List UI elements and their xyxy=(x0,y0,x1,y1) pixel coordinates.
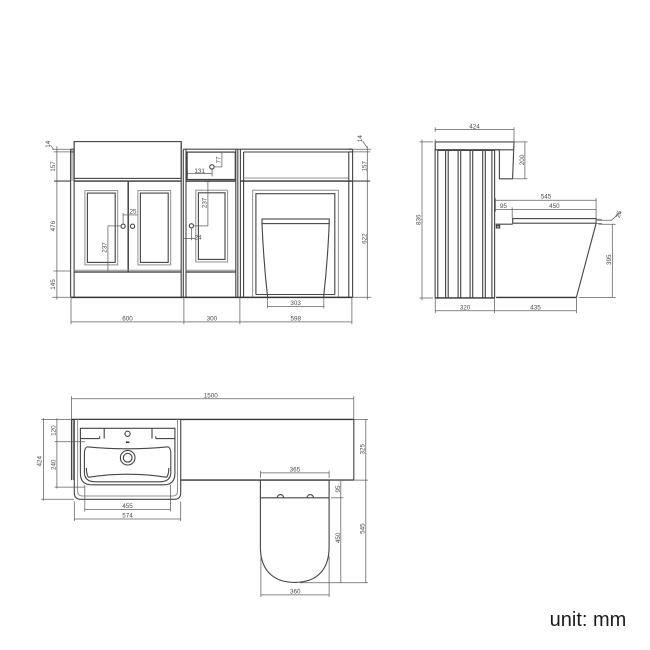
svg-text:240: 240 xyxy=(50,459,57,470)
svg-text:622: 622 xyxy=(361,233,368,244)
svg-text:145: 145 xyxy=(50,279,57,290)
svg-text:574: 574 xyxy=(122,513,133,520)
svg-text:200: 200 xyxy=(519,154,526,165)
svg-text:836: 836 xyxy=(416,214,423,225)
svg-text:157: 157 xyxy=(50,161,57,172)
svg-text:14: 14 xyxy=(357,135,364,143)
svg-text:95: 95 xyxy=(500,203,508,210)
svg-text:450: 450 xyxy=(549,203,560,210)
svg-text:237: 237 xyxy=(202,197,209,208)
svg-text:131: 131 xyxy=(194,168,205,175)
svg-text:424: 424 xyxy=(37,455,44,466)
svg-text:395: 395 xyxy=(606,254,613,265)
svg-text:455: 455 xyxy=(122,503,133,510)
svg-text:77: 77 xyxy=(215,156,222,164)
svg-text:450: 450 xyxy=(335,532,342,543)
svg-text:25: 25 xyxy=(129,209,137,216)
svg-text:120: 120 xyxy=(50,425,57,436)
svg-text:14: 14 xyxy=(45,140,52,148)
svg-text:545: 545 xyxy=(360,523,367,534)
svg-text:95: 95 xyxy=(335,485,342,493)
svg-text:598: 598 xyxy=(291,316,302,323)
svg-text:157: 157 xyxy=(361,160,368,171)
svg-text:325: 325 xyxy=(360,443,367,454)
svg-text:320: 320 xyxy=(460,305,471,312)
svg-text:300: 300 xyxy=(207,316,218,323)
svg-text:360: 360 xyxy=(290,589,301,596)
svg-text:365: 365 xyxy=(290,467,301,474)
svg-text:600: 600 xyxy=(122,316,133,323)
svg-text:545: 545 xyxy=(541,194,552,201)
svg-text:24: 24 xyxy=(194,234,202,241)
svg-text:237: 237 xyxy=(101,242,108,253)
svg-text:476: 476 xyxy=(50,220,57,231)
svg-text:424: 424 xyxy=(469,123,480,130)
svg-text:435: 435 xyxy=(530,305,541,312)
svg-text:303: 303 xyxy=(290,300,301,307)
svg-text:1500: 1500 xyxy=(204,392,219,399)
svg-text:unit: mm: unit: mm xyxy=(550,609,627,631)
